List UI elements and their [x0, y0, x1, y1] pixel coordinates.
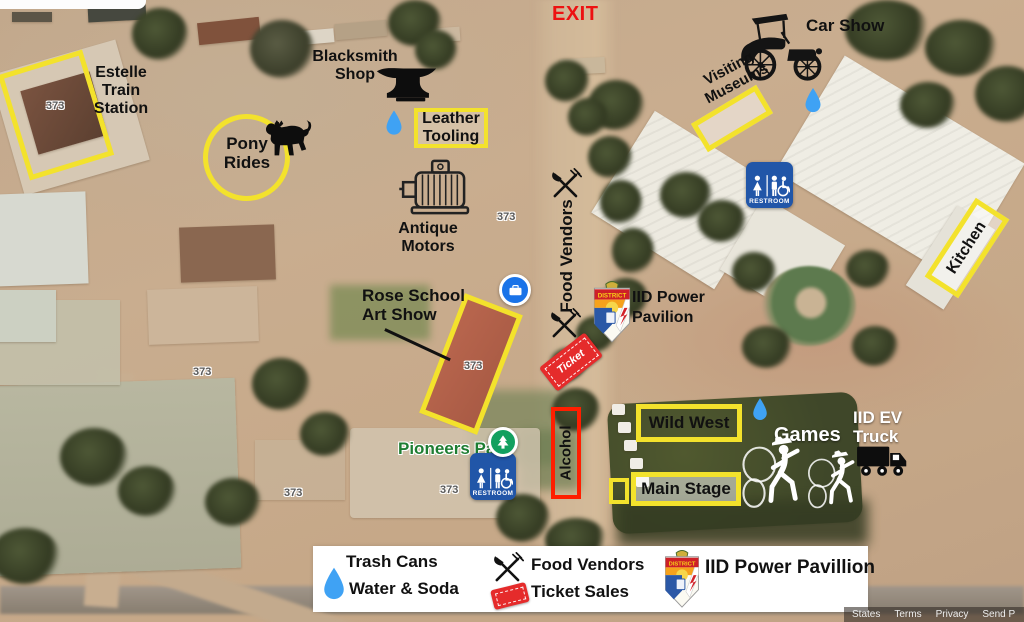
legend-ticket-sales-label: Ticket Sales: [531, 582, 629, 602]
privacy-link[interactable]: Privacy: [936, 609, 969, 620]
wild-west-label: Wild West: [649, 413, 730, 433]
tree: [252, 358, 310, 410]
tree: [300, 412, 350, 456]
briefcase-icon: [508, 284, 523, 296]
poi-marker[interactable]: [499, 274, 531, 306]
map-canvas[interactable]: EXIT Car Show Visiting Museums RESTROOM …: [0, 0, 1024, 622]
car-show-label: Car Show: [806, 16, 884, 35]
legend-trash-cans-label: Trash Cans: [346, 552, 438, 572]
terms-link[interactable]: Terms: [894, 609, 921, 620]
rose-school-art-show-label: Rose School Art Show: [362, 286, 472, 324]
iid-crest-icon: [662, 549, 702, 609]
tree: [732, 252, 776, 292]
food-vendors-label-wrap: Food Vendors: [549, 198, 585, 314]
ev-truck-icon: [855, 444, 911, 478]
house-number: 373: [497, 211, 515, 223]
tree: [118, 466, 176, 516]
feedback-link[interactable]: Send P: [982, 609, 1015, 620]
legend: Trash Cans Water & Soda Food Vendors Tic…: [313, 546, 868, 612]
main-stage-box: Main Stage: [631, 472, 741, 506]
restroom-pictograms-icon: [750, 174, 790, 198]
tree: [205, 478, 261, 526]
tree: [568, 98, 608, 136]
tree: [900, 82, 956, 128]
water-drop-icon: [751, 396, 769, 423]
tree: [545, 60, 589, 102]
tree: [60, 428, 128, 486]
antique-motor-icon: [398, 158, 476, 218]
barn: [0, 191, 89, 286]
restroom-pictograms-icon: [474, 467, 513, 490]
tent: [630, 458, 643, 469]
tree: [852, 326, 898, 366]
tent: [618, 422, 631, 433]
tree: [612, 228, 654, 274]
antique-motors-label: Antique Motors: [392, 220, 464, 256]
barn: [0, 290, 56, 342]
ui-corner-chip: [0, 0, 146, 9]
food-vendors-icon: [489, 552, 525, 586]
iid-crest-icon: [591, 280, 633, 344]
alcohol-label: Alcohol: [558, 426, 575, 481]
legend-food-vendors-label: Food Vendors: [531, 555, 644, 575]
wild-west-box: Wild West: [636, 404, 742, 442]
house-number: 373: [193, 366, 211, 378]
ticket-icon: [490, 582, 530, 610]
tree: [0, 528, 60, 584]
cowboy-icon: [806, 450, 858, 510]
park-marker[interactable]: [488, 427, 518, 457]
leather-tooling-label: Leather Tooling: [418, 110, 484, 145]
tree-icon: [496, 435, 510, 449]
restroom-sign-label: RESTROOM: [749, 198, 790, 208]
main-stage-label: Main Stage: [641, 479, 731, 499]
stage-marker-box: [609, 478, 629, 504]
leather-tooling-box: Leather Tooling: [414, 108, 488, 148]
tree: [588, 136, 632, 178]
water-drop-icon: [384, 108, 404, 138]
iid-ev-truck-label: IID EV Truck: [853, 408, 917, 446]
tree: [846, 250, 890, 288]
attribution-text: States: [852, 609, 880, 620]
tree: [975, 66, 1024, 122]
tree: [132, 8, 188, 60]
tree: [742, 326, 792, 368]
tree: [496, 494, 550, 542]
tree: [698, 200, 746, 242]
legend-iid-pavillion-label: IID Power Pavillion: [705, 557, 875, 579]
cowboy-icon: [740, 436, 804, 510]
horse-icon: [259, 120, 314, 166]
restroom-sign-label: RESTROOM: [473, 490, 514, 500]
tent: [612, 404, 625, 415]
building-pad: [147, 286, 259, 345]
tree: [600, 180, 642, 224]
building: [12, 12, 52, 22]
map-attribution: States Terms Privacy Send P: [844, 607, 1024, 622]
water-drop-icon: [803, 86, 823, 115]
building: [179, 224, 276, 282]
tree: [925, 20, 997, 76]
iid-power-pavilion-label: IID Power Pavilion: [632, 288, 716, 328]
food-vendors-icon: [548, 168, 582, 202]
water-drop-icon: [321, 566, 347, 602]
food-vendors-label: Food Vendors: [557, 199, 577, 312]
house-number: 373: [440, 484, 458, 496]
house-number: 373: [284, 487, 302, 499]
alcohol-box: Alcohol: [551, 407, 581, 499]
restroom-sign: RESTROOM: [470, 453, 516, 500]
ticket-label: Ticket: [555, 348, 587, 377]
legend-water-soda-label: Water & Soda: [349, 579, 459, 599]
estelle-train-station-label: Estelle Train Station: [88, 64, 154, 118]
anvil-icon: [375, 64, 439, 104]
house-number: 373: [464, 360, 482, 372]
exit-label: EXIT: [552, 3, 598, 25]
restroom-sign: RESTROOM: [746, 162, 793, 208]
house-number: 373: [46, 100, 64, 112]
tree: [250, 20, 314, 78]
